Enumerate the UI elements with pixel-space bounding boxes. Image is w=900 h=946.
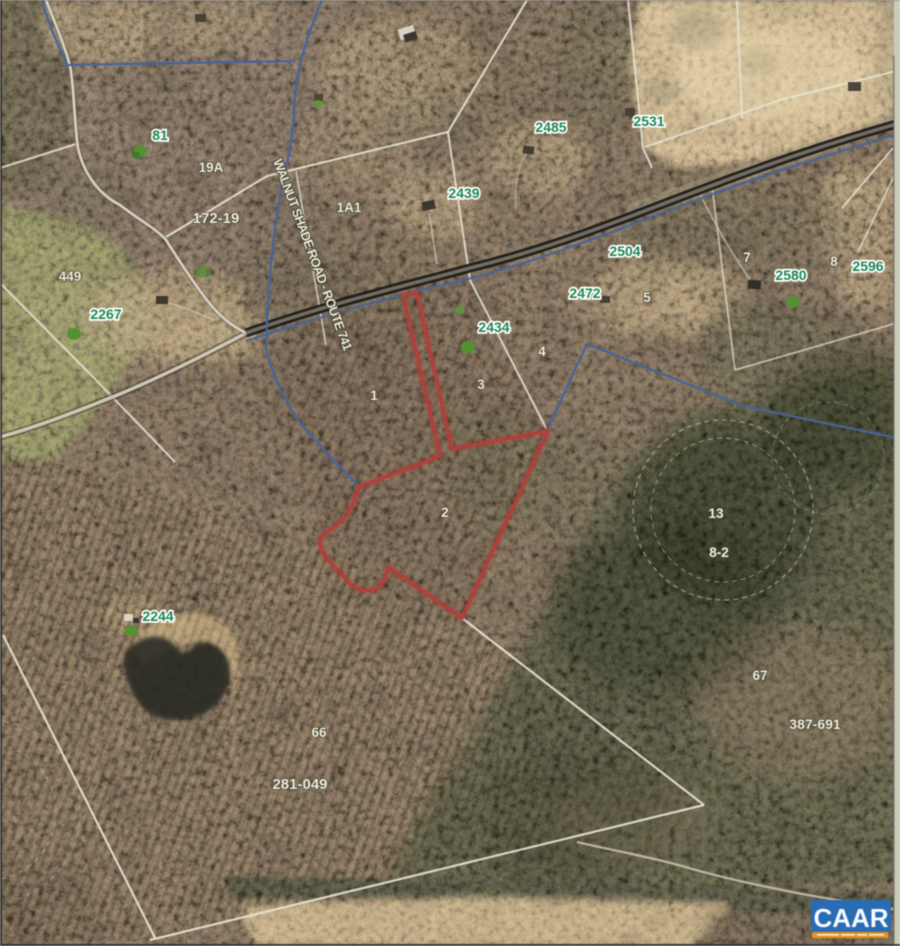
svg-text:5: 5 [643,290,651,305]
svg-text:4: 4 [538,344,546,359]
svg-text:172-19: 172-19 [193,210,240,227]
svg-text:2: 2 [441,505,449,520]
svg-text:13: 13 [708,506,724,521]
svg-text:8: 8 [830,254,838,269]
svg-text:281-049: 281-049 [272,776,327,793]
svg-text:19A: 19A [199,160,224,175]
svg-text:2439: 2439 [448,185,479,201]
svg-text:2504: 2504 [609,243,640,259]
svg-text:66: 66 [311,725,327,740]
svg-text:3: 3 [477,377,485,392]
svg-text:1A1: 1A1 [337,200,362,215]
svg-text:CAAR: CAAR [813,903,888,933]
svg-text:2434: 2434 [478,319,509,335]
svg-text:387-691: 387-691 [789,716,841,732]
svg-text:2485: 2485 [535,119,566,135]
svg-text:81: 81 [152,127,168,143]
svg-text:2472: 2472 [569,285,600,301]
svg-text:2244: 2244 [142,608,173,624]
svg-text:67: 67 [752,668,767,683]
svg-text:1: 1 [370,388,378,403]
svg-text:2596: 2596 [852,258,883,274]
svg-text:2267: 2267 [90,306,121,322]
svg-text:2580: 2580 [775,267,806,283]
svg-text:2531: 2531 [633,113,664,129]
svg-text:7: 7 [743,250,751,265]
svg-text:449: 449 [59,269,82,284]
svg-text:8-2: 8-2 [709,545,729,560]
